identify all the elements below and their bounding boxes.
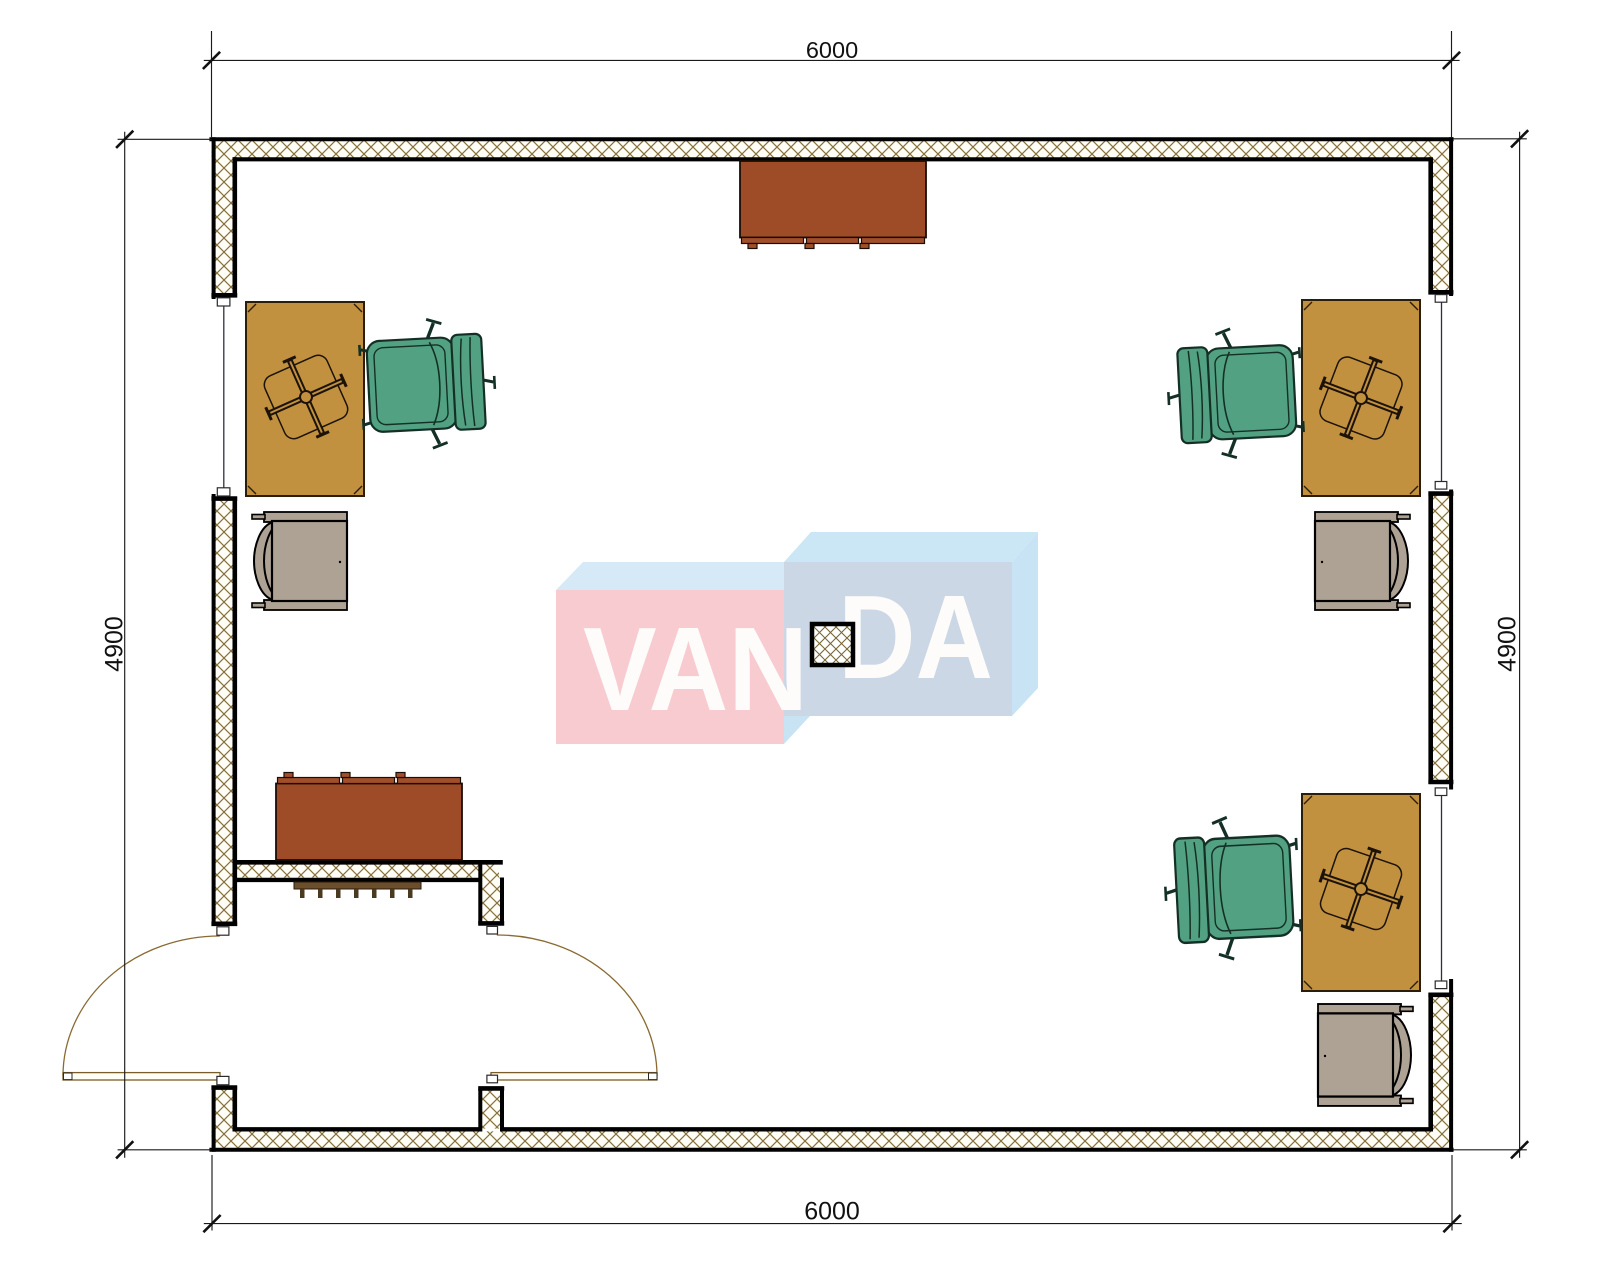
svg-text:6000: 6000 bbox=[804, 1197, 860, 1225]
svg-text:4900: 4900 bbox=[1494, 616, 1522, 672]
svg-text:VAN: VAN bbox=[583, 603, 808, 736]
svg-text:4900: 4900 bbox=[101, 616, 129, 672]
svg-text:6000: 6000 bbox=[806, 37, 858, 63]
svg-text:DA: DA bbox=[838, 571, 993, 704]
